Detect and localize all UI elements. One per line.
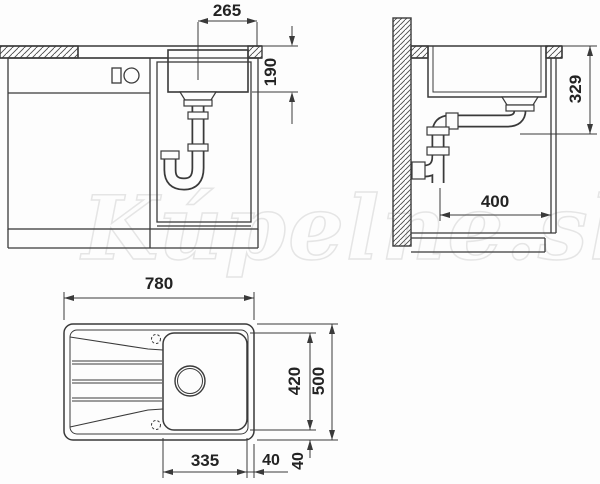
technical-drawing bbox=[0, 0, 600, 484]
cabinet-front bbox=[8, 58, 258, 248]
side-view bbox=[393, 18, 597, 252]
dim-label-front-margin: 40 bbox=[288, 443, 310, 479]
dim-label-overall-width: 780 bbox=[130, 273, 188, 295]
sink-installation-diagram: Kúpelne.sk bbox=[0, 0, 600, 484]
countertop-front bbox=[0, 46, 262, 58]
cabinet-plinth-side bbox=[411, 233, 556, 252]
appliance-knob-icon bbox=[124, 68, 139, 83]
wall-section-side bbox=[393, 18, 411, 246]
dim-label-side-margin: 40 bbox=[255, 450, 287, 472]
dim-780-group bbox=[64, 292, 254, 320]
appliance-button-icon bbox=[112, 68, 121, 83]
dim-label-bowl-width: 335 bbox=[181, 450, 229, 472]
drain-trap-side bbox=[412, 97, 538, 183]
drainboard-top bbox=[70, 337, 163, 427]
drain-trap-front bbox=[161, 92, 216, 184]
dim-label-overall-depth: 500 bbox=[308, 359, 332, 403]
cabinet-plinth-front bbox=[8, 229, 258, 248]
tap-holes-top bbox=[152, 335, 161, 430]
front-view bbox=[0, 18, 298, 248]
sink-basin-side bbox=[428, 46, 546, 97]
dim-label-bowl-length: 420 bbox=[284, 359, 308, 403]
dim-label-basin-depth: 190 bbox=[260, 50, 284, 94]
sink-basin-front bbox=[168, 50, 248, 92]
dim-label-basin-width: 265 bbox=[199, 0, 255, 22]
dim-label-outlet-height: 329 bbox=[565, 67, 589, 111]
drain-hole-top bbox=[175, 366, 205, 396]
dim-label-clearance-depth: 400 bbox=[466, 191, 524, 213]
sink-rim-top bbox=[70, 330, 248, 434]
countertop-side bbox=[411, 46, 562, 58]
